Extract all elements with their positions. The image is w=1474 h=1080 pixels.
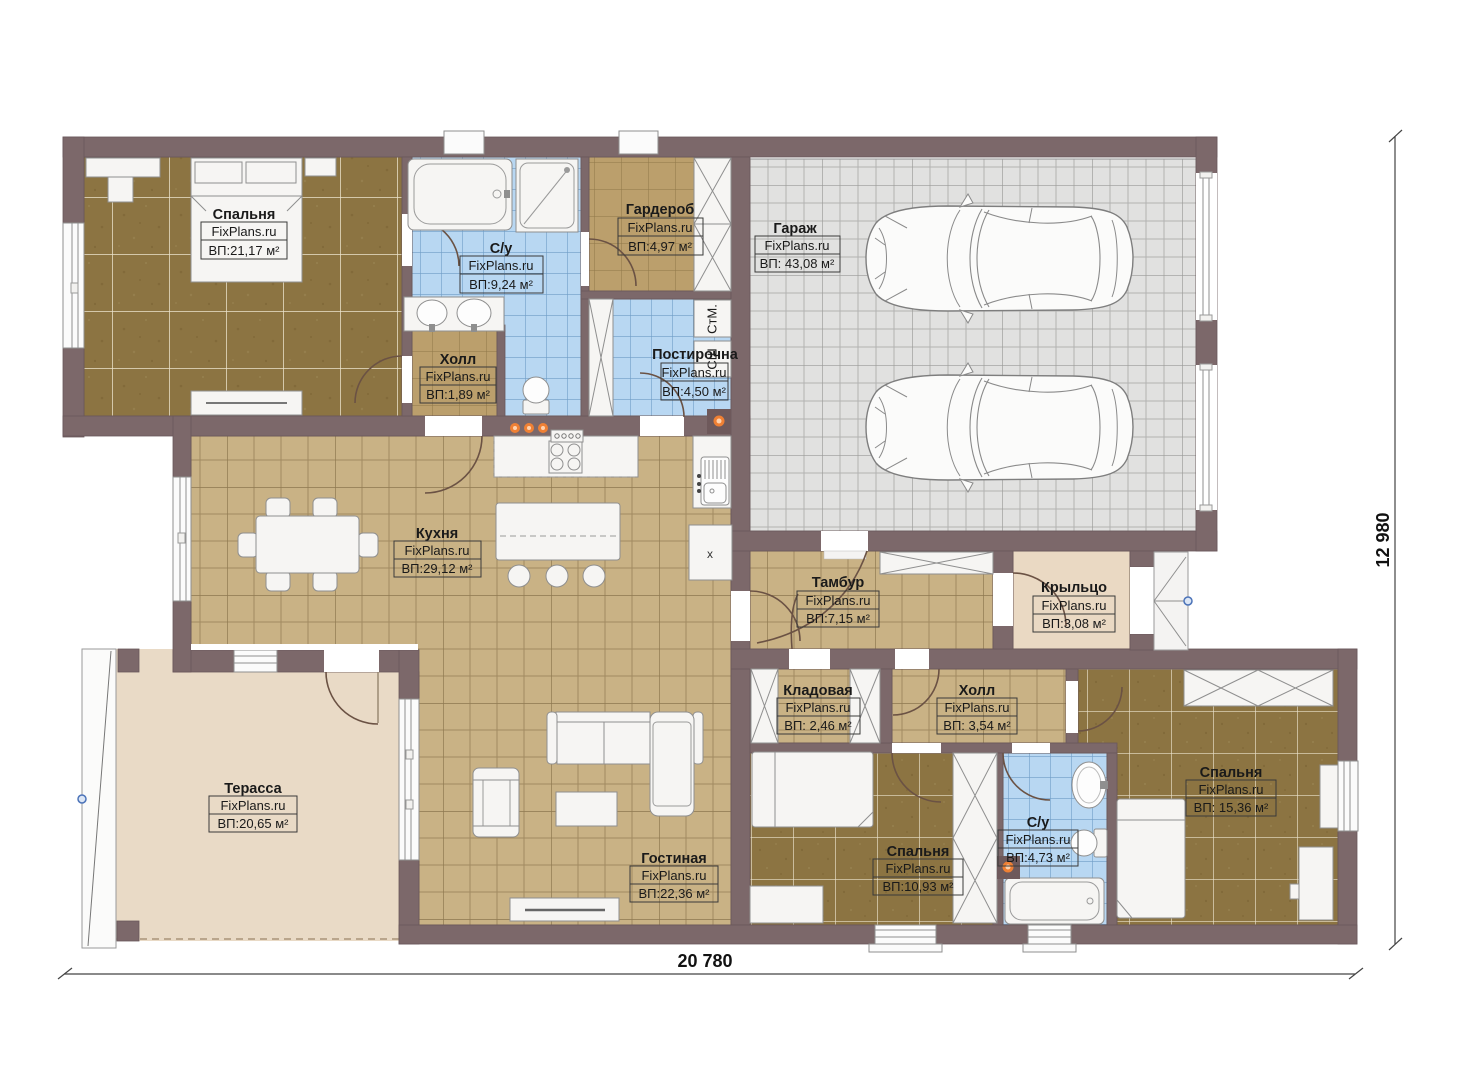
svg-text:ВП: 15,36 м²: ВП: 15,36 м² bbox=[1194, 800, 1269, 815]
svg-text:ВП:7,15 м²: ВП:7,15 м² bbox=[806, 611, 870, 626]
svg-text:FixPlans.ru: FixPlans.ru bbox=[1198, 782, 1263, 797]
svg-text:Крыльцо: Крыльцо bbox=[1041, 580, 1107, 596]
svg-text:ВП:22,36 м²: ВП:22,36 м² bbox=[638, 886, 710, 901]
svg-text:Гостиная: Гостиная bbox=[641, 851, 707, 867]
svg-text:FixPlans.ru: FixPlans.ru bbox=[425, 369, 490, 384]
svg-text:Постирочна: Постирочна bbox=[652, 347, 739, 363]
svg-text:ВП:4,97 м²: ВП:4,97 м² bbox=[628, 239, 692, 254]
svg-text:FixPlans.ru: FixPlans.ru bbox=[785, 700, 850, 715]
svg-text:20 780: 20 780 bbox=[677, 951, 732, 971]
svg-text:ВП: 43,08 м²: ВП: 43,08 м² bbox=[760, 256, 835, 271]
svg-text:ВП:21,17 м²: ВП:21,17 м² bbox=[208, 243, 280, 258]
svg-text:СтМ.: СтМ. bbox=[704, 304, 719, 334]
svg-text:ВП:20,65 м²: ВП:20,65 м² bbox=[217, 816, 289, 831]
svg-text:12 980: 12 980 bbox=[1373, 512, 1393, 567]
svg-text:ВП:29,12 м²: ВП:29,12 м² bbox=[401, 561, 473, 576]
svg-text:x: x bbox=[707, 547, 713, 561]
svg-text:FixPlans.ru: FixPlans.ru bbox=[1005, 832, 1070, 847]
svg-text:FixPlans.ru: FixPlans.ru bbox=[661, 365, 726, 380]
svg-text:ВП:9,24 м²: ВП:9,24 м² bbox=[469, 277, 533, 292]
svg-text:ВП: 2,46 м²: ВП: 2,46 м² bbox=[784, 718, 852, 733]
svg-text:FixPlans.ru: FixPlans.ru bbox=[404, 543, 469, 558]
svg-text:Кладовая: Кладовая bbox=[783, 683, 852, 699]
svg-text:FixPlans.ru: FixPlans.ru bbox=[764, 238, 829, 253]
svg-text:ВП: 3,54 м²: ВП: 3,54 м² bbox=[943, 718, 1011, 733]
svg-text:Спальня: Спальня bbox=[1200, 765, 1263, 781]
svg-text:FixPlans.ru: FixPlans.ru bbox=[627, 220, 692, 235]
svg-text:FixPlans.ru: FixPlans.ru bbox=[641, 868, 706, 883]
svg-text:С/у: С/у bbox=[1027, 815, 1050, 831]
svg-text:FixPlans.ru: FixPlans.ru bbox=[944, 700, 1009, 715]
svg-text:Тамбур: Тамбур bbox=[812, 575, 865, 591]
svg-text:ВП:10,93 м²: ВП:10,93 м² bbox=[882, 879, 954, 894]
svg-text:FixPlans.ru: FixPlans.ru bbox=[1041, 598, 1106, 613]
svg-text:Терасса: Терасса bbox=[224, 781, 282, 797]
svg-text:Холл: Холл bbox=[440, 352, 476, 368]
svg-text:ВП:4,73 м²: ВП:4,73 м² bbox=[1006, 850, 1070, 865]
svg-text:Спальня: Спальня bbox=[213, 207, 276, 223]
svg-text:ВП:4,50 м²: ВП:4,50 м² bbox=[662, 384, 726, 399]
svg-text:Гараж: Гараж bbox=[773, 221, 817, 237]
svg-text:FixPlans.ru: FixPlans.ru bbox=[468, 258, 533, 273]
svg-text:FixPlans.ru: FixPlans.ru bbox=[805, 593, 870, 608]
svg-text:Кухня: Кухня bbox=[416, 526, 458, 542]
svg-text:Гардероб: Гардероб bbox=[626, 202, 695, 218]
svg-text:FixPlans.ru: FixPlans.ru bbox=[211, 224, 276, 239]
svg-text:Спальня: Спальня bbox=[887, 844, 950, 860]
svg-text:ВП:1,89 м²: ВП:1,89 м² bbox=[426, 387, 490, 402]
svg-text:ВП:3,08 м²: ВП:3,08 м² bbox=[1042, 616, 1106, 631]
svg-text:Холл: Холл bbox=[959, 683, 995, 699]
svg-text:FixPlans.ru: FixPlans.ru bbox=[220, 798, 285, 813]
svg-text:FixPlans.ru: FixPlans.ru bbox=[885, 861, 950, 876]
svg-text:С/у: С/у bbox=[490, 241, 513, 257]
